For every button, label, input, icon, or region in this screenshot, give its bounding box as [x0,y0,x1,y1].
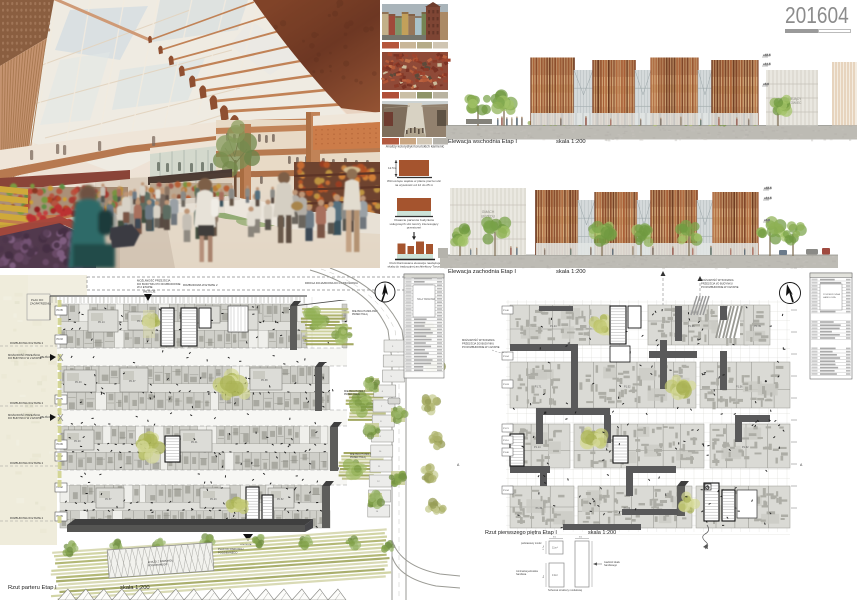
svg-text:ROZBUDOWA W ETAPIE 2: ROZBUDOWA W ETAPIE 2 [10,341,44,345]
svg-text:ZAOPATRZENIA: ZAOPATRZENIA [30,302,51,306]
svg-text:ROZBUDOWA W ETAPIE 2: ROZBUDOWA W ETAPIE 2 [183,283,218,287]
svg-text:HALA TARGOWA: HALA TARGOWA [417,298,436,301]
svg-text:podstawowy moduł: podstawowy moduł [521,542,542,545]
svg-text:P1.71: P1.71 [535,385,542,388]
svg-text:P0.37: P0.37 [129,380,136,383]
svg-text:P1.03: P1.03 [503,384,509,386]
svg-text:P1.49: P1.49 [754,325,761,328]
svg-text:ROZBUDOWA W ETAPIE 2: ROZBUDOWA W ETAPIE 2 [10,516,44,520]
svg-text:PO ROZBUDOWIE W II ETAPIE: PO ROZBUDOWIE W II ETAPIE [701,285,739,289]
svg-text:13m²: 13m² [552,573,558,577]
svg-text:DO BUDYNKU W 2 ETAPIE: DO BUDYNKU W 2 ETAPIE [8,416,42,420]
svg-text:DROGA DOJAZDOWA DO PARKOWANIA: DROGA DOJAZDOWA DO PARKOWANIA [305,281,358,285]
svg-text:P0.41: P0.41 [191,441,198,444]
svg-text:3m: 3m [579,537,582,539]
svg-text:P1.40: P1.40 [503,310,509,312]
svg-text:A: A [457,463,460,467]
svg-text:ROZBUDOWA W ETAPIE 2: ROZBUDOWA W ETAPIE 2 [10,401,44,405]
svg-text:DO BUDYNKU W 2 ETAPIE: DO BUDYNKU W 2 ETAPIE [8,356,42,360]
svg-text:P0.14: P0.14 [98,321,105,324]
svg-text:PRZED HALĄ: PRZED HALĄ [352,313,368,316]
svg-text:P0.38: P0.38 [261,379,268,382]
svg-text:P1.52: P1.52 [624,385,631,388]
svg-text:Analizy kolorystyki toruńskich: Analizy kolorystyki toruńskich kamienic [386,145,445,149]
svg-text:P1.30: P1.30 [536,507,543,510]
svg-text:ROZBUDOWA W ETAPIE 2: ROZBUDOWA W ETAPIE 2 [10,461,44,465]
svg-text:MOŻLIWOŚĆ WYKONANIA: MOŻLIWOŚĆ WYKONANIA [701,277,734,282]
svg-text:11m²: 11m² [552,546,558,550]
svg-text:P0.20: P0.20 [74,440,81,443]
svg-text:+6.0: +6.0 [764,218,770,222]
svg-text:P0.57: P0.57 [105,498,112,501]
svg-text:P1.56: P1.56 [736,385,743,388]
svg-text:P0.09: P0.09 [57,443,64,446]
svg-text:P0.33: P0.33 [57,338,64,341]
svg-text:Schemat struktury modułowej: Schemat struktury modułowej [548,588,582,592]
svg-text:P0.35: P0.35 [57,309,64,312]
svg-text:P1.21: P1.21 [503,428,509,430]
svg-text:P1.24: P1.24 [550,325,557,328]
svg-text:PODZIEMNEGO: PODZIEMNEGO [218,550,237,554]
svg-text:P0.43: P0.43 [75,381,82,384]
svg-text:+12.5: +12.5 [763,62,771,66]
svg-text:P1.62: P1.62 [742,446,749,449]
svg-text:POWIERZCHNIA: POWIERZCHNIA [823,293,841,296]
svg-text:PRZED HALĄ: PRZED HALĄ [350,456,366,459]
svg-text:A: A [800,463,803,467]
svg-text:P1.14: P1.14 [534,446,541,449]
svg-text:P0.23: P0.23 [210,498,217,501]
svg-text:HANDLOWA: HANDLOWA [823,296,836,299]
svg-text:handlowego: handlowego [604,564,618,567]
svg-text:PO ROZBUDOWIE W 1 ETAPIE: PO ROZBUDOWIE W 1 ETAPIE [462,345,500,349]
svg-text:MOŻLIWOŚĆ WYKONANIA: MOŻLIWOŚĆ WYKONANIA [462,337,495,342]
svg-text:+15.5: +15.5 [764,186,772,190]
svg-text:PLAC DO PARKINGU: PLAC DO PARKINGU [218,547,244,551]
svg-text:8m: 8m [543,575,545,578]
svg-text:na wysokość od 12 do 25 m: na wysokość od 12 do 25 m [395,183,434,187]
svg-text:+12.5: +12.5 [764,196,772,200]
svg-text:W 2 ETAPIE: W 2 ETAPIE [137,285,153,289]
svg-text:P1.04: P1.04 [503,356,509,358]
svg-text:P1.10: P1.10 [503,440,509,442]
svg-text:P1.34: P1.34 [503,490,509,492]
svg-text:12.5m: 12.5m [388,166,397,170]
svg-text:PRZED HALĄ: PRZED HALĄ [344,393,360,396]
svg-text:WEJŚCIE: WEJŚCIE [143,289,156,294]
svg-text:+6.0: +6.0 [763,82,769,86]
svg-text:+15.5: +15.5 [763,53,771,57]
svg-text:P1.40: P1.40 [503,452,509,454]
svg-text:przestrzeń: przestrzeń [407,226,422,230]
svg-text:GMACH: GMACH [482,210,495,214]
svg-text:handlowa: handlowa [516,573,527,576]
svg-text:3m: 3m [553,537,556,539]
svg-text:P1.66: P1.66 [688,325,695,328]
svg-text:3.7m: 3.7m [543,545,545,550]
svg-text:P0.52: P0.52 [277,498,284,501]
